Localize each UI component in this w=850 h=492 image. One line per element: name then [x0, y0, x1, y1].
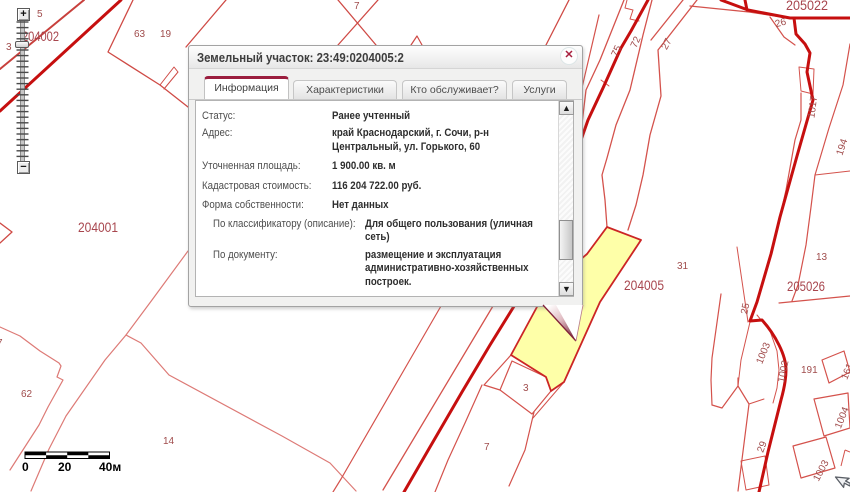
svg-text:27: 27	[660, 36, 675, 51]
svg-text:40м: 40м	[99, 460, 121, 474]
svg-text:62: 62	[21, 389, 33, 400]
svg-text:161: 161	[840, 361, 850, 381]
svg-text:25: 25	[739, 302, 752, 316]
svg-text:1003: 1003	[755, 341, 774, 366]
svg-text:63: 63	[134, 29, 146, 40]
svg-text:13: 13	[816, 252, 828, 263]
svg-text:7: 7	[0, 338, 3, 349]
svg-text:1017: 1017	[806, 95, 820, 119]
svg-text:205022: 205022	[786, 0, 828, 13]
svg-text:0: 0	[22, 460, 29, 474]
svg-text:204005: 204005	[624, 277, 664, 293]
svg-text:194: 194	[835, 137, 850, 157]
svg-text:7: 7	[484, 442, 490, 453]
svg-text:20: 20	[58, 460, 72, 474]
svg-text:72: 72	[629, 35, 644, 50]
svg-text:19: 19	[160, 29, 172, 40]
svg-text:14: 14	[163, 436, 175, 447]
svg-text:31: 31	[677, 261, 689, 272]
svg-text:7: 7	[354, 1, 360, 12]
svg-text:191: 191	[801, 365, 818, 376]
svg-text:1003: 1003	[811, 458, 831, 483]
svg-text:1004: 1004	[833, 405, 850, 430]
svg-text:205026: 205026	[787, 278, 825, 294]
svg-text:3: 3	[523, 383, 529, 394]
svg-text:204001: 204001	[78, 219, 118, 235]
